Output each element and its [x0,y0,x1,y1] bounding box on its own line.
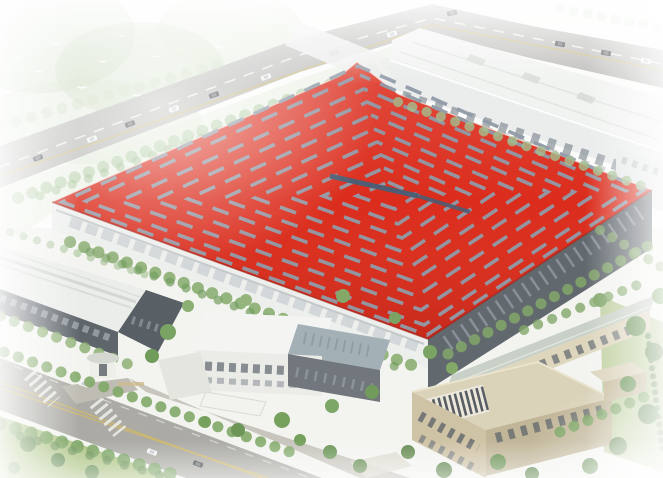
haze-overlays [0,0,663,478]
haze-global [0,0,663,478]
factory-campus-aerial [0,0,663,478]
aerial-rendering-svg [0,0,663,478]
